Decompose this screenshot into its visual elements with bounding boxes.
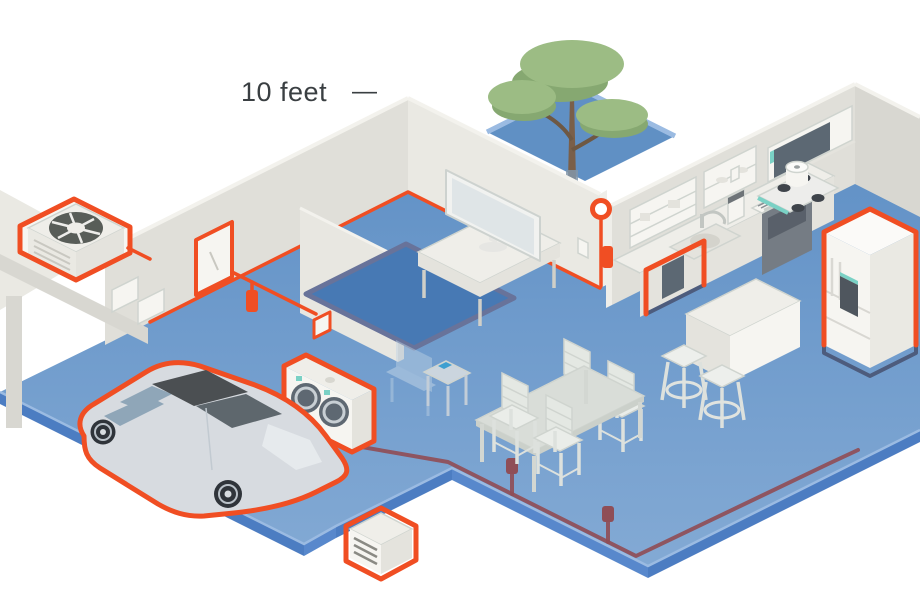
utility-cabinet xyxy=(346,508,416,579)
sensor-plug xyxy=(602,246,613,268)
garage-door-post xyxy=(6,296,22,428)
isometric-house-scene: 10 feet — xyxy=(0,0,920,594)
measure-dash: — xyxy=(352,77,377,105)
floor-outlet-riser xyxy=(602,506,614,522)
pot xyxy=(786,162,808,188)
ev-charger-plug xyxy=(246,290,258,312)
home-range-illustration: 10 feet — xyxy=(0,0,920,594)
measure-text: 10 feet xyxy=(241,77,327,107)
measure-label: 10 feet — xyxy=(241,77,377,107)
refrigerator xyxy=(824,209,916,376)
